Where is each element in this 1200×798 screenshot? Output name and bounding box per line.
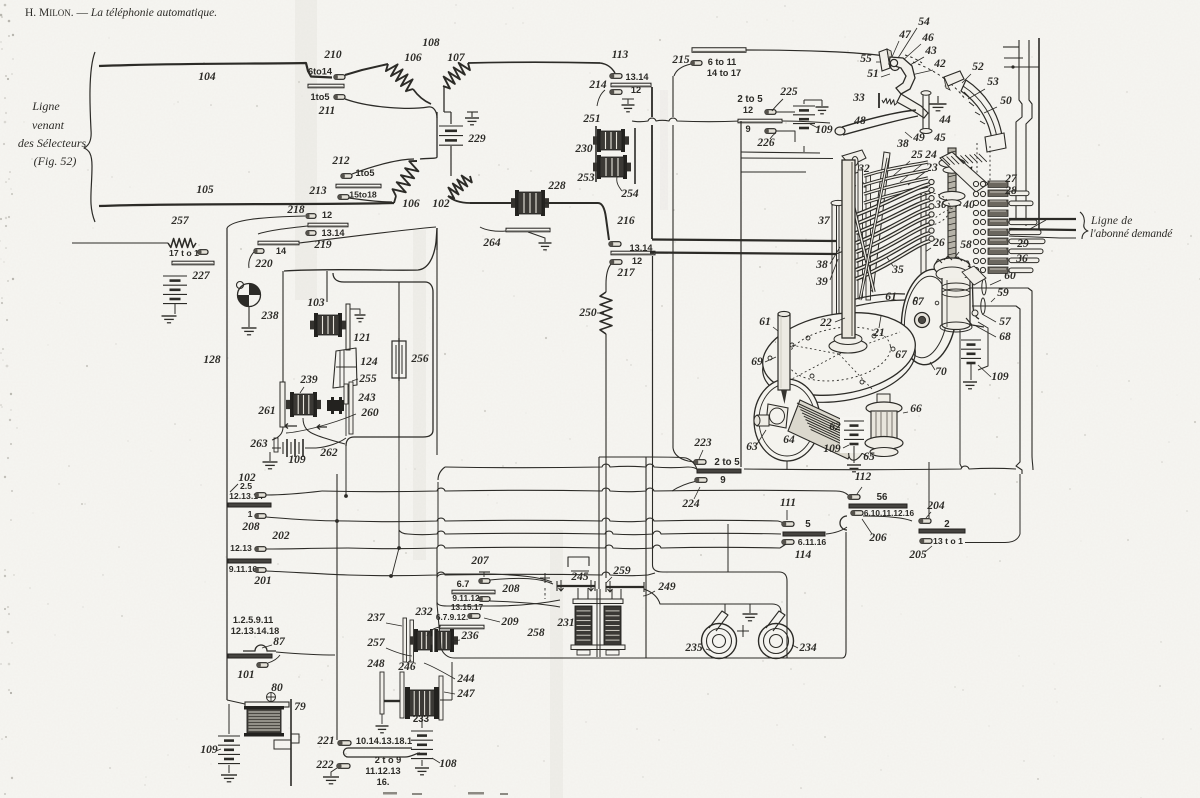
svg-text:261: 261: [257, 405, 275, 417]
svg-text:28: 28: [1004, 185, 1017, 197]
svg-text:257: 257: [366, 637, 386, 649]
svg-text:222: 222: [315, 759, 334, 771]
svg-text:213: 213: [308, 185, 327, 197]
svg-text:238: 238: [260, 310, 279, 322]
svg-text:87: 87: [273, 636, 286, 648]
svg-text:15to18: 15to18: [349, 190, 377, 200]
svg-text:68: 68: [999, 331, 1011, 343]
svg-text:70: 70: [935, 366, 947, 378]
svg-text:45: 45: [933, 132, 946, 144]
svg-text:9: 9: [745, 124, 750, 134]
svg-text:13.15.17: 13.15.17: [451, 602, 484, 612]
svg-text:69: 69: [751, 356, 763, 368]
svg-text:247: 247: [456, 688, 476, 700]
svg-text:223: 223: [693, 437, 712, 449]
svg-text:67: 67: [912, 296, 925, 308]
svg-text:venant: venant: [32, 118, 65, 132]
svg-text:109: 109: [823, 443, 841, 455]
svg-text:253: 253: [576, 172, 595, 184]
svg-text:40: 40: [962, 199, 975, 211]
svg-text:230: 230: [574, 143, 593, 155]
svg-text:12.13.14.18: 12.13.14.18: [231, 626, 280, 636]
svg-text:237: 237: [366, 612, 386, 624]
svg-text:201: 201: [253, 575, 271, 587]
svg-text:12: 12: [743, 105, 753, 115]
svg-text:246: 246: [397, 661, 416, 673]
svg-text:59: 59: [997, 287, 1009, 299]
svg-text:42: 42: [933, 58, 946, 70]
svg-text:50: 50: [1000, 95, 1012, 107]
svg-text:224: 224: [681, 498, 700, 510]
svg-text:106: 106: [404, 52, 422, 64]
svg-text:(Fig. 52): (Fig. 52): [34, 154, 77, 168]
svg-text:46: 46: [921, 32, 934, 44]
svg-text:38: 38: [815, 259, 828, 271]
svg-text:109: 109: [815, 124, 833, 136]
svg-text:1to5: 1to5: [311, 92, 330, 102]
svg-text:12.13: 12.13: [230, 543, 252, 553]
svg-text:2.5: 2.5: [240, 481, 252, 491]
svg-text:102: 102: [432, 198, 450, 210]
svg-text:249: 249: [657, 581, 676, 593]
svg-text:36: 36: [1015, 253, 1028, 265]
svg-text:Ligne: Ligne: [31, 99, 60, 113]
svg-text:108: 108: [422, 37, 440, 49]
svg-text:55: 55: [860, 53, 872, 65]
svg-text:208: 208: [501, 583, 520, 595]
svg-text:206: 206: [868, 532, 887, 544]
svg-text:57: 57: [999, 316, 1012, 328]
svg-text:6to14: 6to14: [308, 67, 333, 77]
svg-text:52: 52: [972, 61, 984, 73]
svg-text:260: 260: [360, 407, 379, 419]
svg-text:113: 113: [612, 49, 629, 61]
svg-text:239: 239: [299, 374, 318, 386]
svg-text:106: 106: [402, 198, 420, 210]
svg-text:12: 12: [322, 210, 332, 220]
svg-text:12: 12: [632, 256, 642, 266]
svg-text:207: 207: [470, 555, 490, 567]
svg-text:61: 61: [759, 316, 771, 328]
svg-text:259: 259: [612, 565, 631, 577]
svg-text:128: 128: [203, 354, 221, 366]
svg-text:44: 44: [938, 114, 951, 126]
svg-text:1.2.5.9.11: 1.2.5.9.11: [233, 615, 273, 625]
svg-text:2 to 5: 2 to 5: [714, 457, 740, 468]
svg-text:9: 9: [720, 475, 726, 486]
svg-text:231: 231: [556, 617, 574, 629]
svg-text:56: 56: [877, 492, 888, 503]
svg-text:215: 215: [671, 54, 690, 66]
svg-text:227: 227: [191, 270, 211, 282]
svg-text:111: 111: [780, 497, 796, 509]
svg-text:53: 53: [987, 76, 999, 88]
svg-text:109: 109: [288, 454, 306, 466]
svg-text:39: 39: [815, 276, 828, 288]
svg-text:264: 264: [482, 237, 501, 249]
svg-text:63: 63: [746, 441, 758, 453]
svg-text:243: 243: [357, 392, 376, 404]
svg-text:258: 258: [526, 627, 545, 639]
svg-text:121: 121: [353, 332, 370, 344]
svg-text:256: 256: [410, 353, 429, 365]
svg-text:H. MILON. — La téléphonie auto: H. MILON. — La téléphonie automatique.: [25, 7, 217, 19]
svg-text:228: 228: [547, 180, 566, 192]
svg-text:13.14: 13.14: [626, 72, 650, 82]
svg-text:6.11.16: 6.11.16: [798, 537, 827, 547]
svg-text:13 t o 1: 13 t o 1: [933, 536, 963, 546]
svg-text:49: 49: [912, 132, 925, 144]
svg-text:79: 79: [294, 701, 306, 713]
svg-text:103: 103: [307, 297, 325, 309]
svg-text:109: 109: [991, 371, 1009, 383]
svg-text:33: 33: [852, 92, 865, 104]
svg-text:2: 2: [944, 519, 949, 530]
svg-text:226: 226: [756, 137, 775, 149]
svg-text:14: 14: [276, 246, 287, 256]
svg-text:248: 248: [366, 658, 385, 670]
svg-text:des Sélecteurs: des Sélecteurs: [18, 136, 87, 150]
svg-text:112: 112: [855, 471, 872, 483]
svg-text:21: 21: [872, 327, 885, 339]
svg-text:51: 51: [867, 68, 879, 80]
svg-text:27: 27: [1004, 173, 1018, 185]
svg-text:64: 64: [783, 434, 795, 446]
svg-text:13.14: 13.14: [322, 228, 346, 238]
svg-text:257: 257: [170, 215, 190, 227]
svg-text:66: 66: [910, 403, 922, 415]
svg-text:235: 235: [684, 642, 703, 654]
svg-text:225: 225: [779, 86, 798, 98]
svg-text:263: 263: [249, 438, 268, 450]
svg-text:229: 229: [467, 133, 486, 145]
svg-text:212: 212: [331, 155, 350, 167]
svg-text:67: 67: [895, 349, 908, 361]
svg-text:9.11.16: 9.11.16: [229, 564, 258, 574]
svg-text:65: 65: [863, 451, 875, 463]
svg-text:107: 107: [447, 52, 466, 64]
svg-text:Ligne de: Ligne de: [1090, 215, 1133, 227]
svg-text:12: 12: [631, 85, 641, 95]
svg-text:236: 236: [460, 630, 479, 642]
svg-text:114: 114: [795, 549, 812, 561]
svg-text:37: 37: [817, 215, 831, 227]
svg-text:29: 29: [1016, 238, 1029, 250]
svg-text:2 to 5: 2 to 5: [737, 94, 763, 105]
svg-text:80: 80: [271, 682, 283, 694]
svg-text:254: 254: [620, 188, 639, 200]
svg-text:l'abonné demandé: l'abonné demandé: [1090, 228, 1173, 240]
svg-text:38: 38: [896, 138, 909, 150]
svg-text:2 t o 9: 2 t o 9: [375, 755, 402, 765]
svg-text:232: 232: [414, 606, 433, 618]
svg-text:62: 62: [829, 421, 841, 433]
svg-text:211: 211: [318, 105, 336, 117]
svg-text:250: 250: [578, 307, 597, 319]
svg-text:214: 214: [588, 79, 607, 91]
svg-text:6.7: 6.7: [457, 579, 470, 589]
svg-text:244: 244: [456, 673, 475, 685]
svg-text:108: 108: [439, 758, 457, 770]
svg-text:209: 209: [500, 616, 519, 628]
svg-text:124: 124: [360, 356, 378, 368]
svg-text:109: 109: [200, 744, 218, 756]
svg-text:220: 220: [254, 258, 273, 270]
svg-text:22: 22: [819, 317, 832, 329]
svg-text:221: 221: [316, 735, 334, 747]
svg-text:217: 217: [616, 267, 636, 279]
svg-text:104: 104: [198, 71, 216, 83]
svg-text:6 to 11: 6 to 11: [708, 57, 737, 67]
svg-text:233: 233: [413, 714, 430, 725]
svg-text:255: 255: [358, 373, 377, 385]
svg-text:54: 54: [918, 16, 930, 28]
svg-text:58: 58: [960, 239, 972, 251]
svg-text:208: 208: [241, 521, 260, 533]
svg-text:218: 218: [286, 204, 305, 216]
svg-text:251: 251: [582, 113, 600, 125]
svg-text:202: 202: [271, 530, 290, 542]
svg-text:5: 5: [805, 519, 811, 530]
svg-text:101: 101: [237, 669, 254, 681]
svg-text:17 t o 1: 17 t o 1: [169, 248, 199, 258]
svg-text:234: 234: [798, 642, 817, 654]
svg-text:43: 43: [924, 45, 937, 57]
svg-text:205: 205: [908, 549, 927, 561]
svg-text:24: 24: [924, 149, 937, 161]
svg-text:105: 105: [196, 184, 214, 196]
svg-text:6.7.9.12.: 6.7.9.12.: [436, 612, 468, 622]
svg-text:11.12.13: 11.12.13: [365, 766, 400, 776]
svg-text:1: 1: [248, 509, 253, 519]
svg-text:210: 210: [323, 49, 342, 61]
svg-text:25: 25: [910, 149, 923, 161]
svg-text:262: 262: [319, 447, 338, 459]
svg-text:216: 216: [616, 215, 635, 227]
svg-text:245: 245: [570, 571, 589, 583]
svg-text:10.14.13.18.1: 10.14.13.18.1: [356, 736, 412, 746]
svg-text:14 to 17: 14 to 17: [707, 68, 741, 78]
svg-text:16.: 16.: [377, 777, 390, 787]
